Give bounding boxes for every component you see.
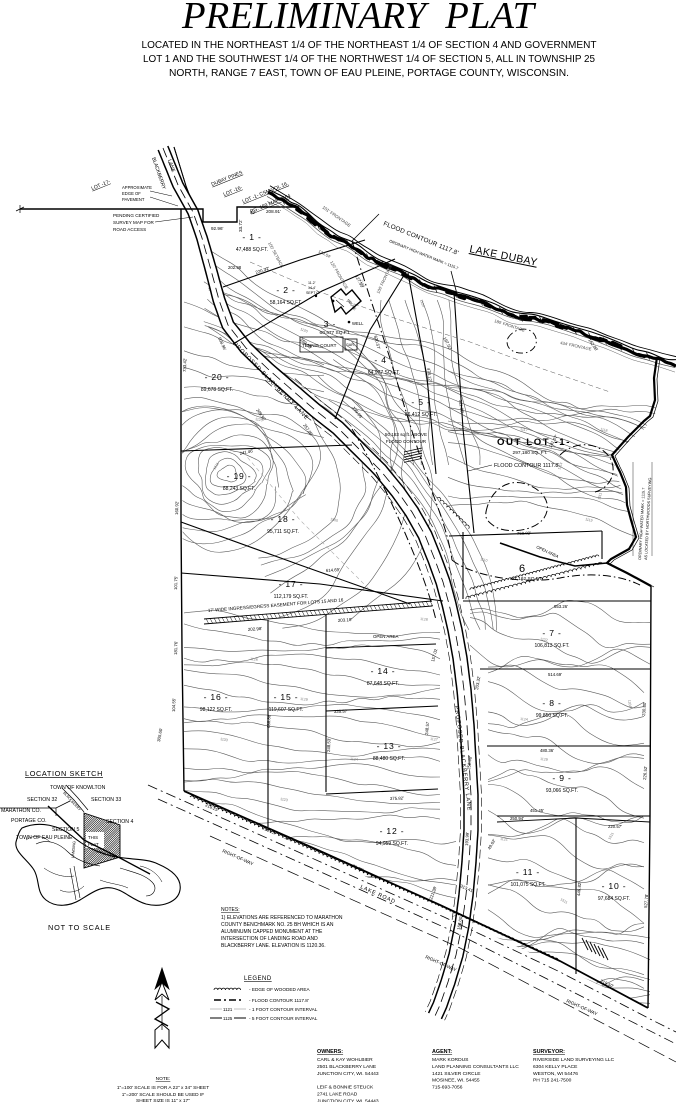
- svg-text:LOCATION SKETCH: LOCATION SKETCH: [25, 771, 103, 778]
- svg-text:BLACKBERRY LANE. ELEVATION IS: BLACKBERRY LANE. ELEVATION IS 1120.36.: [221, 943, 326, 949]
- svg-text:1"=100' SCALE IS FOR A 22" x 3: 1"=100' SCALE IS FOR A 22" x 34" SHEET: [117, 1085, 209, 1091]
- svg-text:- 18 -: - 18 -: [271, 514, 296, 524]
- svg-text:1126: 1126: [250, 657, 258, 662]
- svg-text:94,959 SQ.FT.: 94,959 SQ.FT.: [376, 841, 408, 847]
- svg-text:95,711 SQ.FT.: 95,711 SQ.FT.: [267, 529, 299, 535]
- svg-text:11.2': 11.2': [308, 281, 316, 285]
- svg-text:60,477 SQ.FT.: 60,477 SQ.FT.: [320, 330, 351, 336]
- svg-text:87,648 SQ.FT.: 87,648 SQ.FT.: [367, 681, 399, 687]
- svg-text:33.72': 33.72': [238, 220, 243, 232]
- svg-text:LEIF & BONNIE STEUCK: LEIF & BONNIE STEUCK: [317, 1085, 374, 1091]
- svg-text:- 20 -: - 20 -: [205, 372, 230, 382]
- svg-text:- 9 -: - 9 -: [552, 773, 571, 783]
- svg-text:- 1 FOOT CONTOUR INTERVAL: - 1 FOOT CONTOUR INTERVAL: [249, 1007, 318, 1012]
- svg-text:SEPT C.: SEPT C.: [306, 291, 320, 295]
- svg-text:- 14 -: - 14 -: [371, 666, 396, 676]
- svg-text:- 11 -: - 11 -: [516, 867, 540, 877]
- svg-text:112,179 SQ.FT.: 112,179 SQ.FT.: [274, 594, 309, 600]
- svg-text:1121: 1121: [500, 837, 508, 842]
- svg-text:COUNTY BENCHMARK NO. 25 BH WH: COUNTY BENCHMARK NO. 25 BH WHICH IS AN: [221, 922, 334, 928]
- svg-text:SECTION 32: SECTION 32: [27, 797, 57, 803]
- svg-text:TOWN OF KNOWLTON: TOWN OF KNOWLTON: [50, 785, 106, 791]
- svg-text:101.75': 101.75': [173, 576, 178, 590]
- svg-text:INTERSECTION OF LANDING ROAD A: INTERSECTION OF LANDING ROAD AND: [221, 936, 318, 942]
- svg-text:220.57': 220.57': [608, 824, 622, 829]
- svg-text:93,066 SQ.FT.: 93,066 SQ.FT.: [546, 788, 578, 794]
- svg-text:- 1 -: - 1 -: [242, 232, 261, 242]
- svg-text:88,243 SQ.FT.: 88,243 SQ.FT.: [223, 486, 255, 492]
- svg-text:- 19 -: - 19 -: [227, 471, 252, 481]
- svg-text:1) ELEVATIONS ARE REFERENCED T: 1) ELEVATIONS ARE REFERENCED TO MARATHON: [221, 915, 343, 921]
- svg-text:208.91': 208.91': [266, 209, 281, 214]
- svg-text:3 -: 3 -: [324, 319, 336, 329]
- svg-text:NOT TO SCALE: NOT TO SCALE: [48, 923, 111, 932]
- svg-text:- 13 -: - 13 -: [377, 741, 402, 751]
- svg-text:99': 99': [250, 210, 256, 215]
- svg-text:119,607 SQ.FT.: 119,607 SQ.FT.: [269, 707, 304, 713]
- svg-text:- 5 -: - 5 -: [411, 397, 430, 407]
- svg-text:101,075 SQ.FT.: 101,075 SQ.FT.: [510, 882, 545, 888]
- svg-text:ALUMINUMN CAPPED MONUMENT AT T: ALUMINUMN CAPPED MONUMENT AT THE: [221, 929, 323, 935]
- svg-text:47,488 SQ.FT.: 47,488 SQ.FT.: [236, 247, 268, 253]
- svg-text:LEGEND: LEGEND: [244, 976, 272, 982]
- svg-text:MARATHON CO.: MARATHON CO.: [1, 808, 41, 814]
- svg-text:99,850 SQ.FT.: 99,850 SQ.FT.: [536, 713, 568, 719]
- svg-text:86,412 SQ.FT.: 86,412 SQ.FT.: [405, 412, 437, 418]
- svg-text:TENNIS COURT: TENNIS COURT: [302, 343, 337, 348]
- svg-text:250.94': 250.94': [510, 816, 524, 821]
- svg-text:97,684 SQ.FT.: 97,684 SQ.FT.: [598, 896, 630, 902]
- svg-text:638.88': 638.88': [266, 714, 271, 728]
- svg-text:- 15 -: - 15 -: [274, 692, 299, 702]
- svg-text:375.82': 375.82': [390, 796, 404, 801]
- svg-text:733.42': 733.42': [182, 358, 187, 372]
- svg-text:58,164 SQ.FT.: 58,164 SQ.FT.: [270, 300, 302, 306]
- svg-text:1125: 1125: [223, 1016, 233, 1021]
- svg-text:1124: 1124: [350, 757, 358, 762]
- svg-text:SURVEY MAP FOR: SURVEY MAP FOR: [113, 220, 155, 225]
- svg-text:- 4 -: - 4 -: [374, 355, 393, 365]
- svg-text:OPEN AREA: OPEN AREA: [373, 634, 398, 639]
- svg-text:OUT LOT -1-: OUT LOT -1-: [497, 437, 571, 448]
- svg-text:- EDGE OF WOODED AREA: - EDGE OF WOODED AREA: [249, 987, 311, 992]
- svg-text:1129: 1129: [300, 697, 308, 702]
- svg-text:- 8 -: - 8 -: [542, 698, 561, 708]
- svg-text:2741 LAKE ROAD: 2741 LAKE ROAD: [317, 1092, 358, 1098]
- svg-text:PORTAGE CO.: PORTAGE CO.: [11, 818, 47, 824]
- svg-text:SECTION 33: SECTION 33: [91, 797, 121, 803]
- svg-text:ROAD ACCESS: ROAD ACCESS: [113, 227, 146, 232]
- svg-text:PAVEMENT: PAVEMENT: [122, 197, 145, 202]
- svg-text:514.69': 514.69': [548, 672, 562, 677]
- svg-text:1129: 1129: [540, 757, 548, 762]
- svg-text:EDGE OF: EDGE OF: [122, 191, 141, 196]
- svg-text:- 5 FOOT CONTOUR INTERVAL: - 5 FOOT CONTOUR INTERVAL: [249, 1016, 318, 1021]
- svg-text:64,977 SQ.FT.: 64,977 SQ.FT.: [368, 370, 400, 376]
- svg-text:PRELIMINARY PLAT: PRELIMINARY PLAT: [181, 0, 537, 37]
- svg-text:PH 715 241-7500: PH 715 241-7500: [533, 1078, 572, 1084]
- svg-text:FLOOD CONTOUR: FLOOD CONTOUR: [386, 439, 427, 444]
- svg-text:- 16 -: - 16 -: [204, 692, 229, 702]
- svg-text:MARK KORDUS: MARK KORDUS: [432, 1057, 469, 1063]
- svg-text:GAR.: GAR.: [346, 343, 355, 347]
- svg-text:98,122 SQ.FT.: 98,122 SQ.FT.: [200, 707, 232, 713]
- svg-text:MOSINEE, WI. 54455: MOSINEE, WI. 54455: [432, 1078, 480, 1084]
- svg-text:1128: 1128: [420, 617, 428, 622]
- svg-text:89,678 SQ.FT.: 89,678 SQ.FT.: [201, 387, 233, 393]
- svg-text:202.98: 202.98: [228, 265, 242, 270]
- svg-text:OWNERS:: OWNERS:: [317, 1049, 343, 1055]
- svg-text:CARL & KAY WOHLBIER: CARL & KAY WOHLBIER: [317, 1057, 373, 1063]
- svg-text:JUNCTION CITY, WI. 54443: JUNCTION CITY, WI. 54443: [317, 1098, 379, 1102]
- svg-text:- 2 -: - 2 -: [276, 285, 295, 295]
- svg-text:WELL: WELL: [352, 321, 364, 326]
- svg-text:6304 KELLY PLACE: 6304 KELLY PLACE: [533, 1064, 578, 1070]
- svg-text:NOTES:: NOTES:: [221, 907, 240, 913]
- svg-text:- 12 -: - 12 -: [380, 826, 405, 836]
- svg-text:- 10 -: - 10 -: [602, 881, 627, 891]
- svg-text:451.45': 451.45': [530, 808, 544, 813]
- svg-text:1121: 1121: [223, 1007, 233, 1012]
- svg-text:APPROXIMATE: APPROXIMATE: [122, 185, 152, 190]
- svg-text:335.57': 335.57': [334, 709, 348, 714]
- svg-text:- 17 -: - 17 -: [279, 579, 304, 589]
- svg-text:AGENT:: AGENT:: [432, 1049, 452, 1055]
- svg-text:- 7 -: - 7 -: [542, 628, 561, 638]
- svg-text:SURVEYOR:: SURVEYOR:: [533, 1049, 565, 1055]
- svg-text:SHEET SIZE IS 11" x 17": SHEET SIZE IS 11" x 17": [136, 1098, 190, 1102]
- svg-text:104.55': 104.55': [171, 698, 176, 712]
- svg-text:NOTE:: NOTE:: [156, 1076, 171, 1082]
- svg-text:248.53': 248.53': [326, 738, 331, 752]
- svg-text:6: 6: [519, 563, 525, 575]
- svg-text:WESTON, WI 54476: WESTON, WI 54476: [533, 1071, 578, 1077]
- svg-text:553.26': 553.26': [554, 604, 568, 609]
- svg-text:NORTH, RANGE 7 EAST, TOWN OF E: NORTH, RANGE 7 EAST, TOWN OF EAU PLEINE,…: [169, 68, 569, 79]
- svg-text:LOCATED IN THE NORTHEAST 1/4 O: LOCATED IN THE NORTHEAST 1/4 OF THE NORT…: [142, 40, 597, 51]
- svg-text:PENDING CERTIFIED: PENDING CERTIFIED: [113, 213, 160, 218]
- svg-text:LAND PLANNING CONSULTANTS LLC: LAND PLANNING CONSULTANTS LLC: [432, 1064, 519, 1070]
- svg-text:715-693-7056: 715-693-7056: [432, 1085, 463, 1091]
- svg-text:88,480 SQ.FT.: 88,480 SQ.FT.: [373, 756, 405, 762]
- svg-text:769.83': 769.83': [517, 531, 531, 536]
- svg-text:160.92': 160.92': [174, 501, 179, 515]
- svg-text:480.36': 480.36': [540, 748, 554, 753]
- svg-text:JUNCTION CITY, WI. 54443: JUNCTION CITY, WI. 54443: [317, 1071, 379, 1077]
- svg-text:1127: 1127: [430, 737, 438, 742]
- svg-text:1421 SILVER CIRCLE: 1421 SILVER CIRCLE: [432, 1071, 481, 1077]
- svg-text:97,162 SQ.FT.: 97,162 SQ.FT.: [512, 576, 543, 582]
- svg-text:1124: 1124: [520, 717, 528, 722]
- svg-text:297,180 SQ. FT.: 297,180 SQ. FT.: [513, 450, 548, 456]
- svg-text:106,813 SQ.FT.: 106,813 SQ.FT.: [534, 643, 569, 649]
- svg-text:- FLOOD CONTOUR 1117.8': - FLOOD CONTOUR 1117.8': [249, 998, 309, 1003]
- svg-text:14.4': 14.4': [308, 286, 316, 290]
- svg-text:193.99': 193.99': [464, 832, 470, 846]
- svg-text:50,183 sq.ft. ABOVE: 50,183 sq.ft. ABOVE: [385, 432, 427, 437]
- svg-text:RIVERSIDE LAND SURVEYING LLC: RIVERSIDE LAND SURVEYING LLC: [533, 1057, 615, 1063]
- svg-text:2501 BLACKBERRY LANE: 2501 BLACKBERRY LANE: [317, 1064, 377, 1070]
- svg-text:THIS: THIS: [88, 835, 98, 840]
- svg-text:LOT 1 AND THE SOUTHWEST 1/4 OF: LOT 1 AND THE SOUTHWEST 1/4 OF THE NORTH…: [143, 54, 595, 65]
- svg-text:92.96': 92.96': [211, 226, 223, 231]
- svg-text:614.69': 614.69': [326, 567, 340, 573]
- svg-text:1"=200' SCALE SHOULD BE USED I: 1"=200' SCALE SHOULD BE USED IF: [122, 1092, 205, 1098]
- svg-text:FLOOD CONTOUR 1117.8': FLOOD CONTOUR 1117.8': [494, 463, 559, 469]
- svg-text:181.76': 181.76': [173, 641, 178, 655]
